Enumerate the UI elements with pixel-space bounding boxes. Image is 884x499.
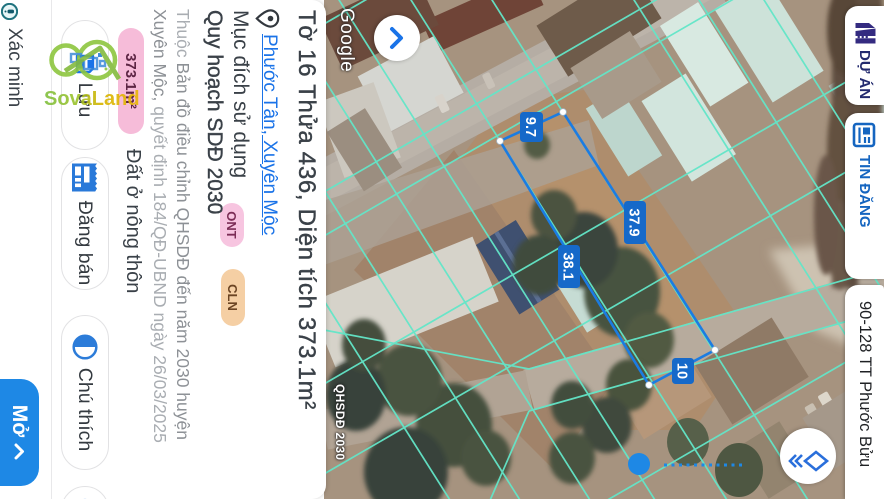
- svg-text:38.1: 38.1: [560, 252, 576, 280]
- svg-text:9.7: 9.7: [522, 117, 538, 137]
- svg-text:SovaLand: SovaLand: [44, 88, 140, 110]
- svg-text:37.9: 37.9: [626, 208, 642, 236]
- svg-text:10: 10: [674, 363, 690, 379]
